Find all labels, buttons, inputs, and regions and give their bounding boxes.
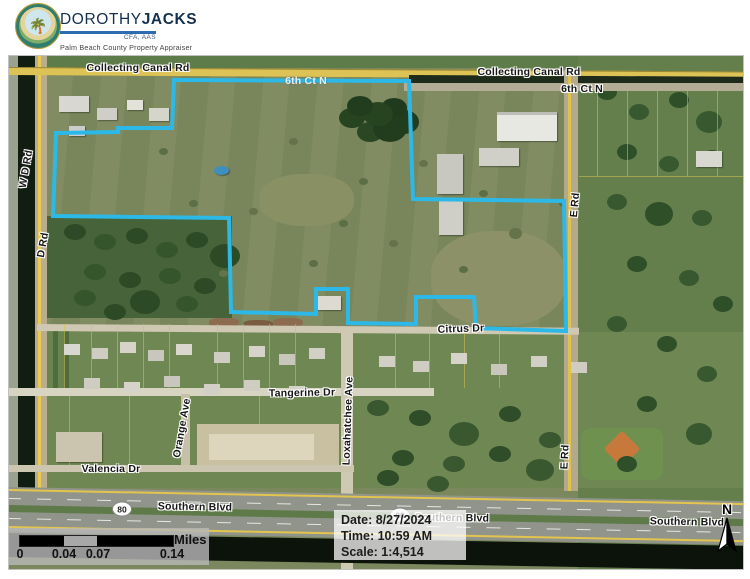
brand-subtitle: Palm Beach County Property Appraiser [60,43,192,52]
scale-seg-2 [64,536,97,546]
scale-bar-panel: 0 0.04 0.07 0.14 Miles [9,528,209,565]
parcel-outline-layer [9,56,743,569]
app-header: 🌴 DOROTHYJACKS CFA, AAS Palm Beach Count… [0,0,750,55]
label-e-rd-north: E Rd [568,192,582,218]
scale-unit-label: Miles [174,532,207,547]
info-scale: Scale: 1:4,514 [341,544,466,560]
scale-tick-004: 0.04 [52,547,76,561]
map-info-box: Date: 8/27/2024 Time: 10:59 AM Scale: 1:… [334,510,466,560]
label-southern-blvd-west: Southern Blvd [158,500,233,513]
scale-tick-007: 0.07 [86,547,110,561]
info-time: Time: 10:59 AM [341,528,466,544]
north-label: N [709,503,744,516]
scale-bar [19,535,174,547]
county-seal-icon: 🌴 [15,3,61,49]
brand-title: DOROTHYJACKS [60,11,197,29]
route-80-shield-west: 80 [112,502,132,517]
brand-last: JACKS [142,11,198,28]
parcel-boundary[interactable] [53,80,566,331]
label-collecting-canal-rd-east: Collecting Canal Rd [478,66,581,78]
north-arrow-icon [715,517,739,555]
scale-seg-3 [97,536,173,546]
label-6th-ct-n-faint: 6th Ct N [285,75,327,87]
aerial-map-canvas[interactable]: Collecting Canal Rd Collecting Canal Rd … [8,55,744,570]
info-date: Date: 8/27/2024 [341,512,466,528]
label-tangerine-dr: Tangerine Dr [269,386,336,399]
label-citrus-dr: Citrus Dr [437,322,484,336]
label-valencia-dr: Valencia Dr [82,463,141,475]
scale-tick-0: 0 [17,547,24,561]
brand-first: DOROTHY [60,11,142,28]
label-e-rd-south: E Rd [558,444,571,469]
label-collecting-canal-rd-west: Collecting Canal Rd [87,62,190,74]
brand-credentials: CFA, AAS [60,34,156,41]
scale-seg-1 [20,536,64,546]
label-6th-ct-n: 6th Ct N [561,83,603,95]
scale-tick-014: 0.14 [160,547,184,561]
north-arrow: N [709,503,744,565]
